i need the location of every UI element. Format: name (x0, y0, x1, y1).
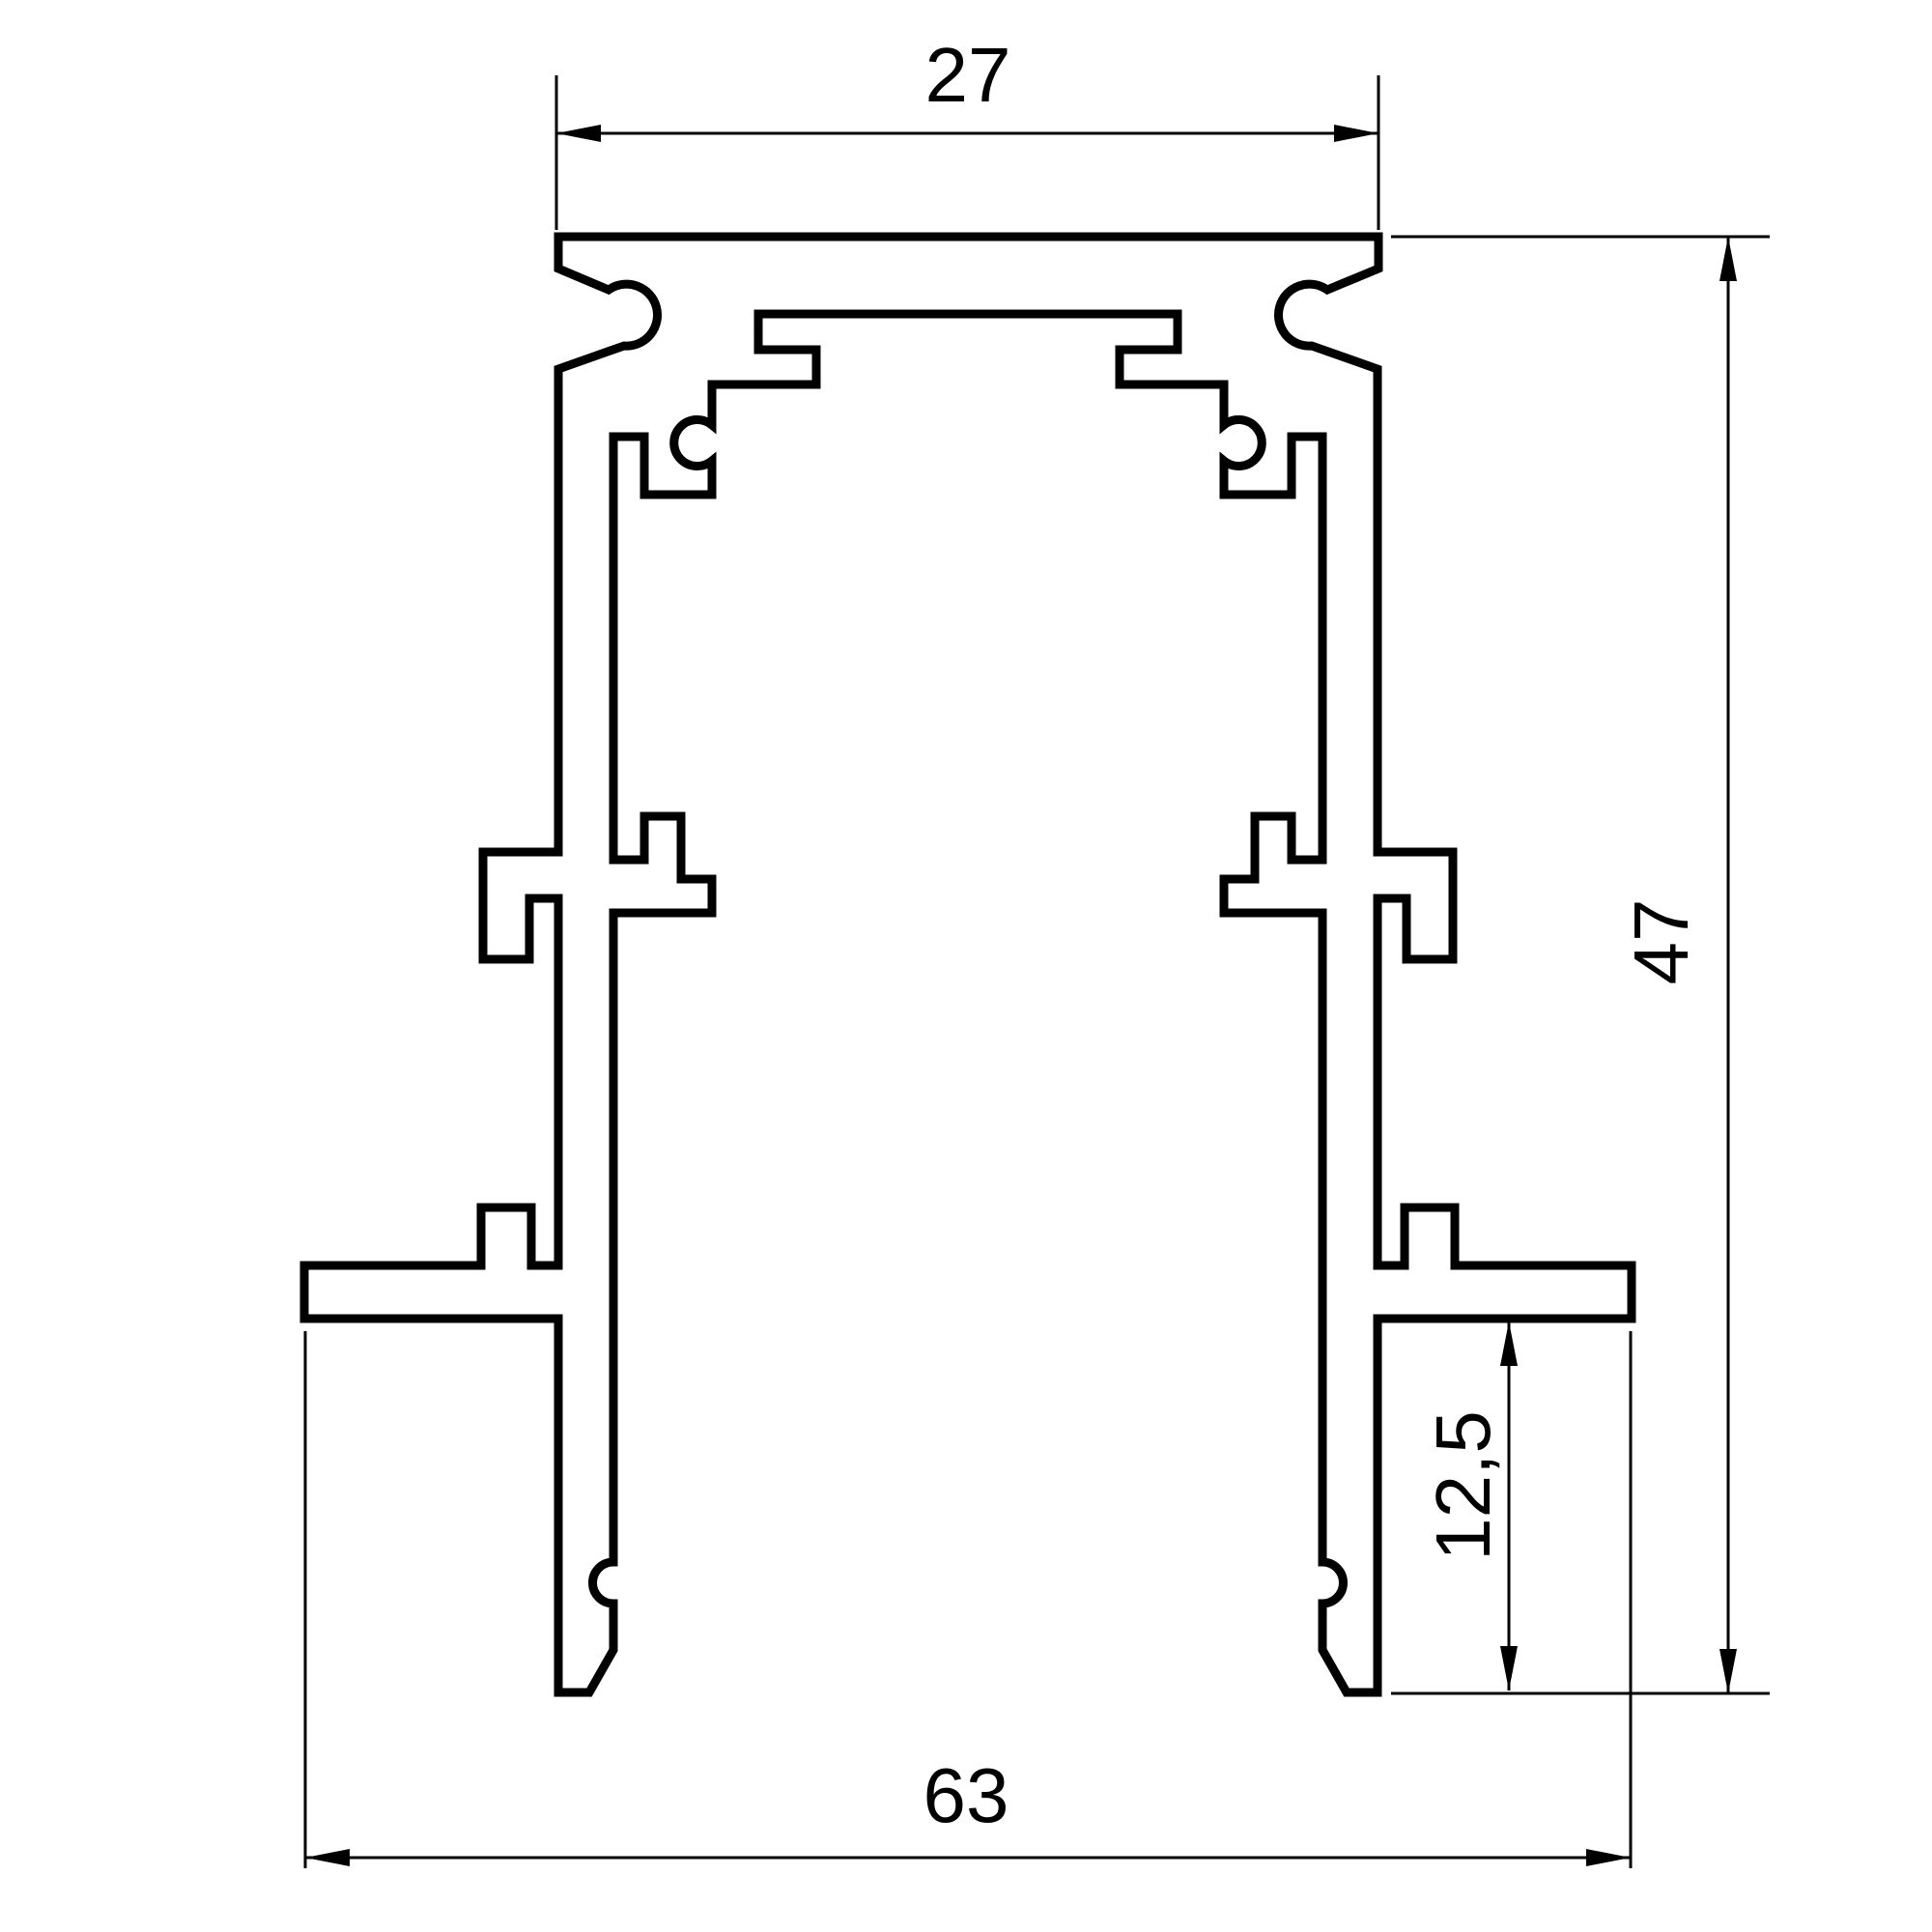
arrowhead-down-icon (1500, 1646, 1518, 1690)
arrowhead-left-icon (556, 125, 601, 142)
dimension-top-width: 27 (556, 32, 1378, 230)
arrowhead-left-icon (305, 1849, 350, 1866)
profile-drawing-svg: 27 47 12,5 63 (0, 0, 1932, 1932)
arrowhead-up-icon (1500, 1321, 1518, 1366)
dimension-label-overall-width: 63 (923, 1752, 1009, 1838)
arrowhead-right-icon (1334, 125, 1378, 142)
dimension-label-inner-height: 12,5 (1420, 1410, 1506, 1561)
dimension-inner-height: 12,5 (1420, 1321, 1518, 1690)
dimension-label-top-width: 27 (925, 32, 1011, 118)
arrowhead-up-icon (1719, 237, 1737, 281)
arrowhead-right-icon (1586, 1849, 1631, 1866)
dimension-label-overall-height: 47 (1618, 899, 1704, 985)
arrowhead-down-icon (1719, 1649, 1737, 1693)
drawing-canvas: 27 47 12,5 63 (0, 0, 1932, 1932)
